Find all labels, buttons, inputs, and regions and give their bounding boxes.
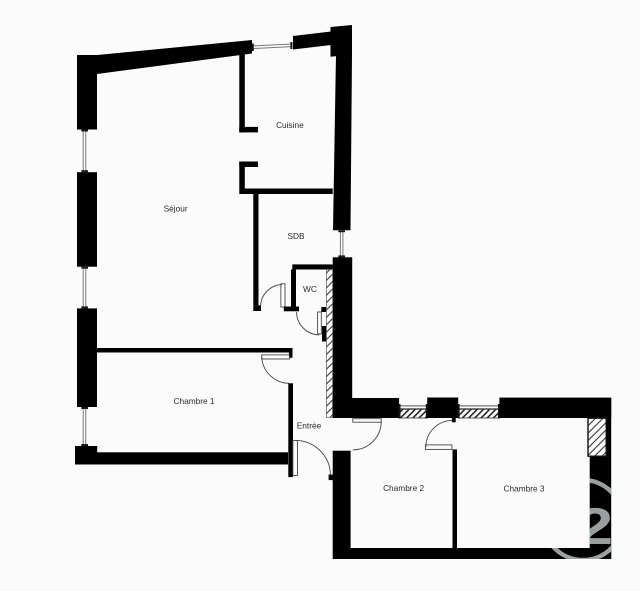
svg-text:1: 1 — [613, 498, 640, 555]
svg-text:SDB: SDB — [287, 231, 305, 241]
svg-text:Cuisine: Cuisine — [276, 120, 304, 130]
svg-text:Chambre 1: Chambre 1 — [173, 396, 214, 406]
svg-text:2: 2 — [577, 498, 613, 555]
svg-text:Chambre 2: Chambre 2 — [383, 483, 424, 493]
svg-text:Entrée: Entrée — [297, 421, 322, 431]
svg-text:Séjour: Séjour — [164, 204, 188, 214]
svg-text:Chambre 3: Chambre 3 — [503, 484, 544, 494]
svg-text:WC: WC — [303, 284, 317, 294]
